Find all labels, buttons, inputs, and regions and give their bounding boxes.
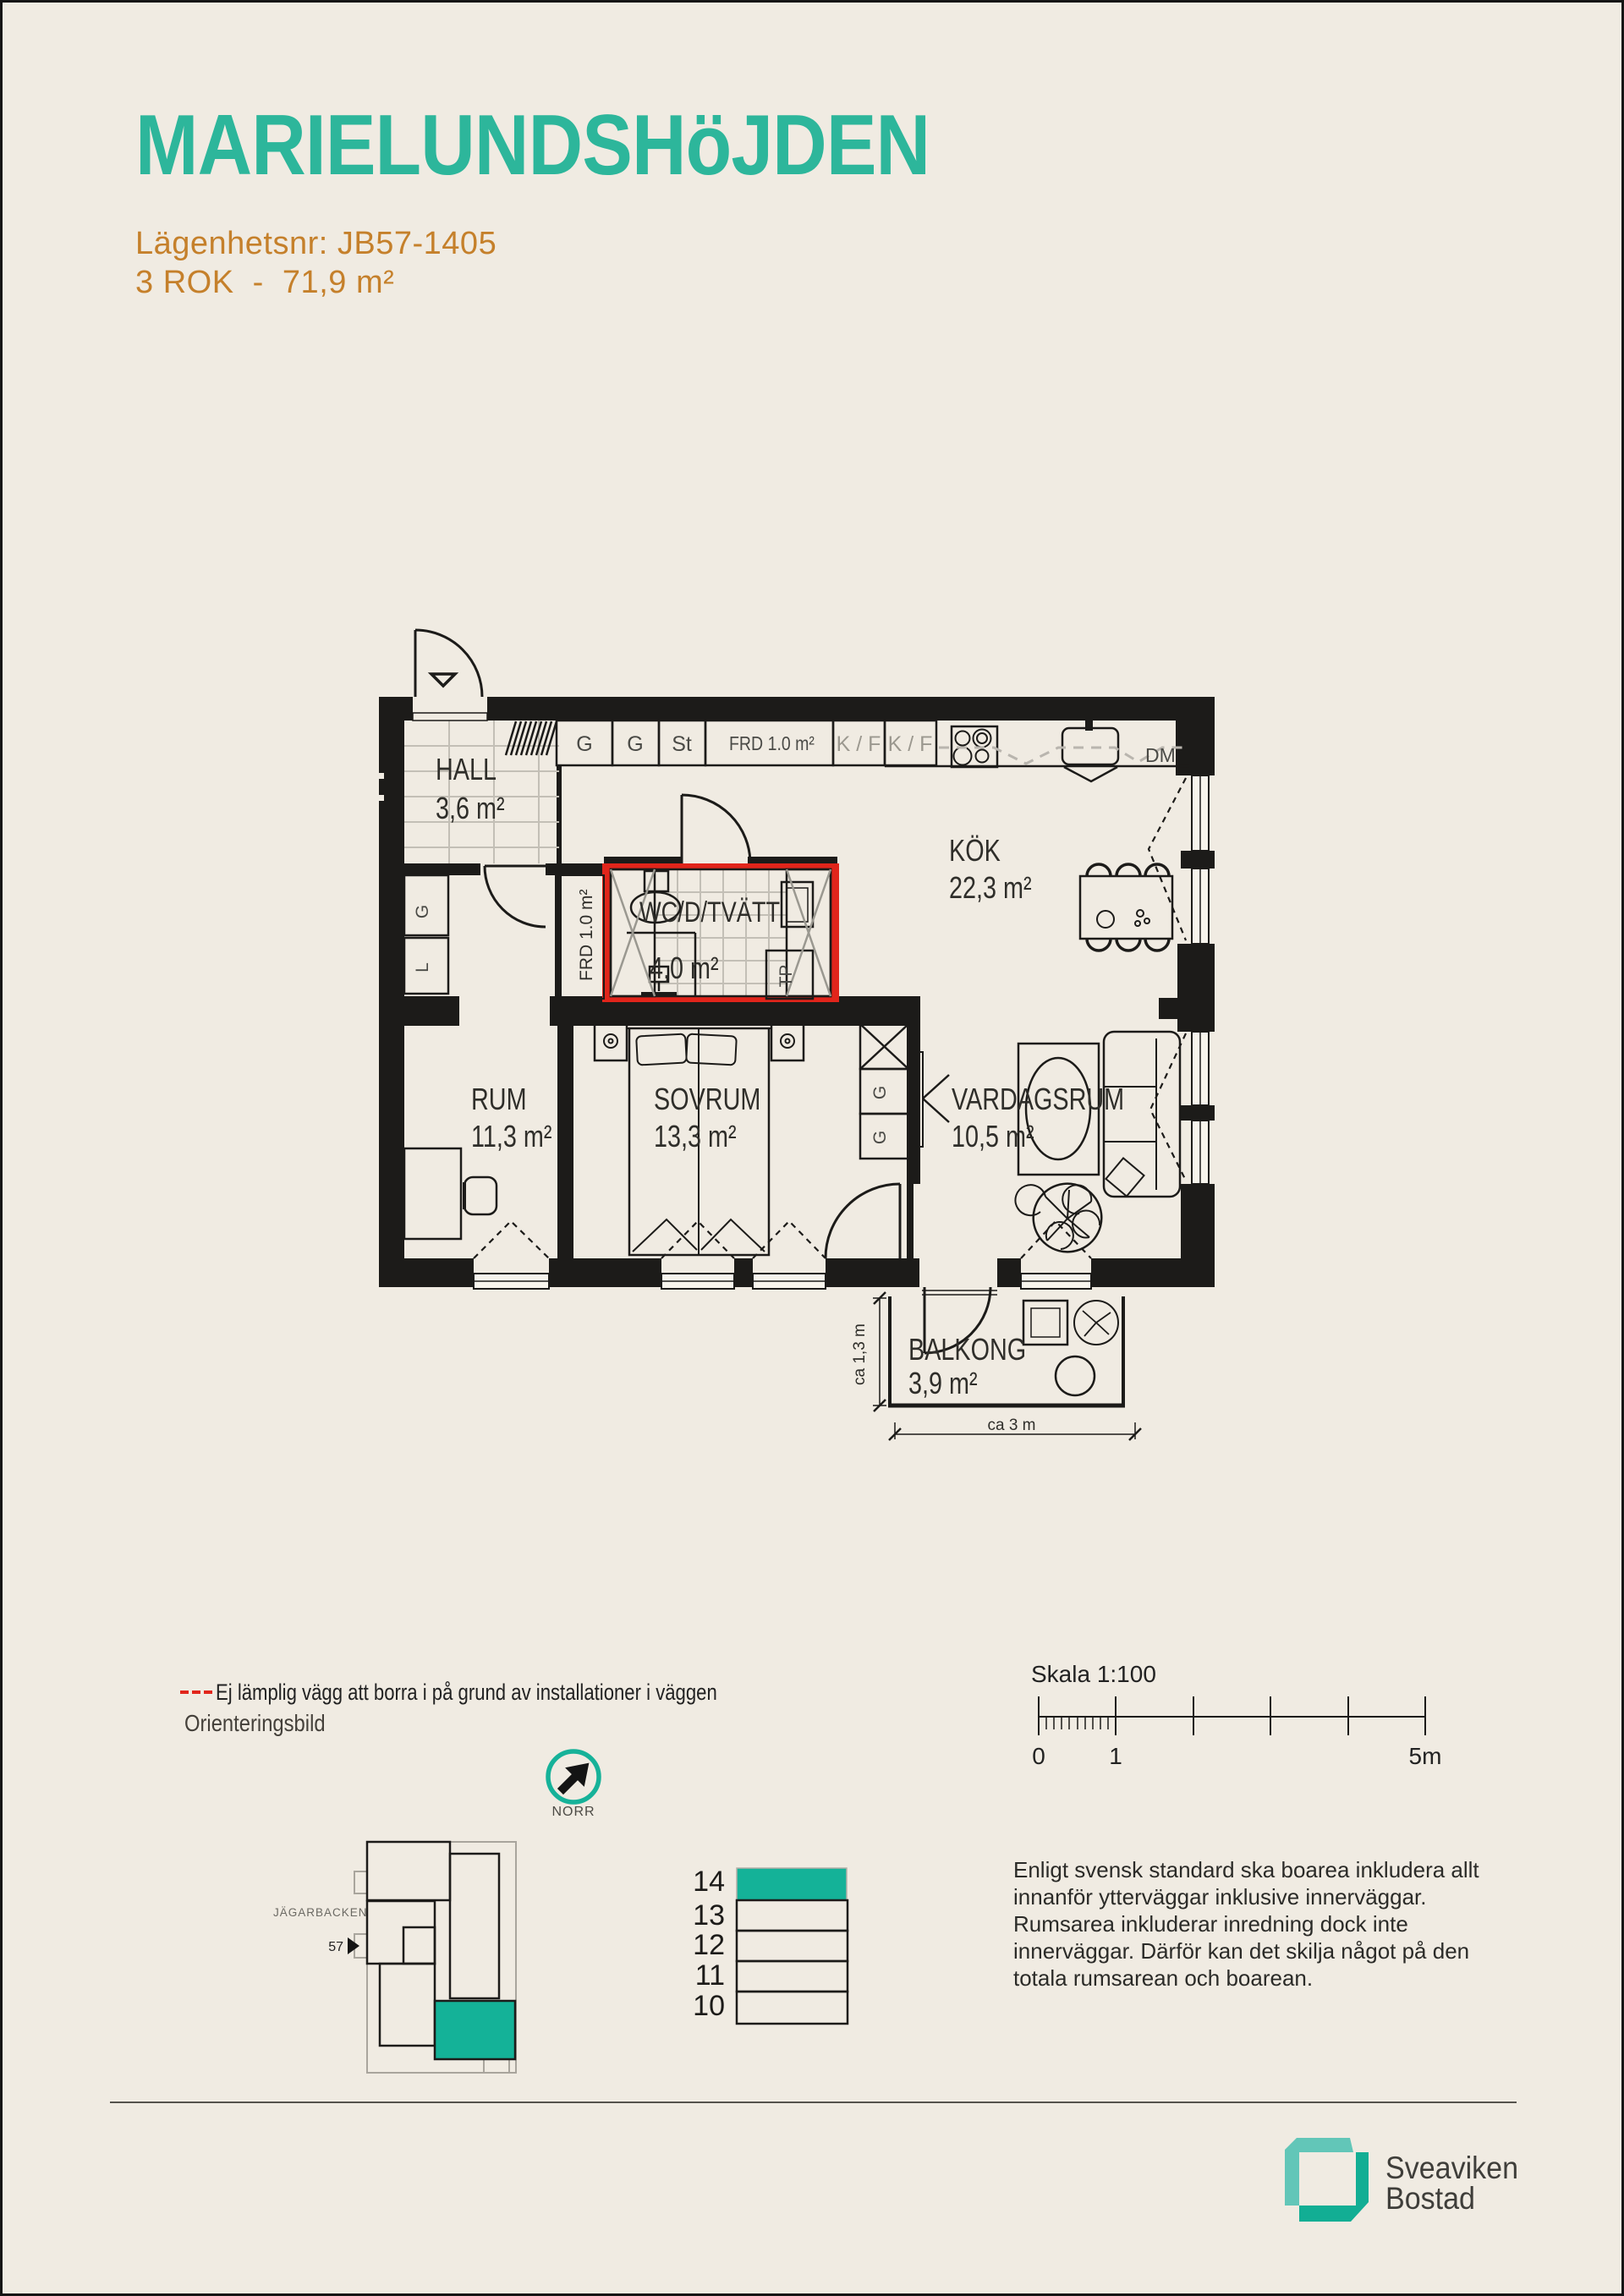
svg-text:0: 0 xyxy=(1032,1743,1045,1769)
svg-text:3,6 m²: 3,6 m² xyxy=(436,791,505,825)
svg-text:1: 1 xyxy=(1109,1743,1122,1769)
svg-text:NORR: NORR xyxy=(551,1805,595,1819)
svg-text:totala rumsarean och boarean.: totala rumsarean och boarean. xyxy=(1013,1965,1313,1991)
svg-text:13: 13 xyxy=(693,1899,725,1932)
svg-text:K / F: K / F xyxy=(837,732,881,756)
svg-text:FRD 1.0 m²: FRD 1.0 m² xyxy=(577,889,596,981)
svg-text:VARDAGSRUM: VARDAGSRUM xyxy=(952,1082,1124,1116)
svg-text:G: G xyxy=(576,732,592,756)
svg-text:Orienteringsbild: Orienteringsbild xyxy=(184,1709,326,1736)
svg-text:KÖK: KÖK xyxy=(949,833,1001,868)
svg-text:MARIELUNDSHöJDEN: MARIELUNDSHöJDEN xyxy=(135,98,930,193)
svg-text:13,3 m²: 13,3 m² xyxy=(654,1119,737,1153)
svg-text:G: G xyxy=(870,1086,890,1099)
svg-text:SOVRUM: SOVRUM xyxy=(654,1082,760,1116)
svg-text:ca 3 m: ca 3 m xyxy=(987,1417,1035,1434)
svg-text:FRD 1.0 m²: FRD 1.0 m² xyxy=(729,733,815,755)
svg-text:JÄGARBACKEN: JÄGARBACKEN xyxy=(273,1906,368,1919)
svg-text:10: 10 xyxy=(693,1990,725,2022)
svg-text:G: G xyxy=(870,1131,890,1144)
svg-text:22,3 m²: 22,3 m² xyxy=(949,870,1032,905)
svg-text:10,5 m²: 10,5 m² xyxy=(952,1119,1034,1153)
svg-text:K / F: K / F xyxy=(888,732,933,756)
svg-text:WC/D/TVÄTT: WC/D/TVÄTT xyxy=(639,896,780,929)
svg-text:Skala 1:100: Skala 1:100 xyxy=(1031,1661,1156,1687)
svg-text:innerväggar. Därför kan det sk: innerväggar. Därför kan det skilja något… xyxy=(1013,1938,1469,1964)
svg-text:3 ROK - 71,9 m²: 3 ROK - 71,9 m² xyxy=(135,265,394,300)
svg-text:TP: TP xyxy=(776,965,796,988)
svg-text:St: St xyxy=(672,732,692,756)
svg-text:DM: DM xyxy=(1145,744,1176,766)
svg-text:ca 1,3 m: ca 1,3 m xyxy=(851,1323,869,1385)
svg-text:RUM: RUM xyxy=(471,1082,527,1116)
svg-text:Lägenhetsnr: JB57-1405: Lägenhetsnr: JB57-1405 xyxy=(135,226,497,261)
svg-text:G: G xyxy=(627,732,643,756)
svg-text:12: 12 xyxy=(693,1929,725,1961)
svg-text:G: G xyxy=(413,905,432,918)
svg-text:11,3 m²: 11,3 m² xyxy=(471,1119,552,1153)
svg-text:L: L xyxy=(413,962,432,973)
svg-text:Bostad: Bostad xyxy=(1385,2181,1475,2217)
svg-text:innanför ytterväggar inklusive: innanför ytterväggar inklusive innervägg… xyxy=(1013,1884,1427,1910)
svg-text:3,9 m²: 3,9 m² xyxy=(908,1366,978,1400)
svg-text:4,0 m²: 4,0 m² xyxy=(650,951,719,985)
svg-text:5m: 5m xyxy=(1409,1743,1442,1769)
svg-text:57: 57 xyxy=(328,1940,343,1954)
svg-text:14: 14 xyxy=(693,1866,725,1898)
svg-text:Ej lämplig vägg att borra i på: Ej lämplig vägg att borra i på grund av … xyxy=(216,1680,717,1706)
svg-text:Enligt svensk standard ska boa: Enligt svensk standard ska boarea inklud… xyxy=(1013,1857,1479,1882)
svg-text:11: 11 xyxy=(695,1959,725,1992)
svg-text:Rumsarea inkluderar inredning: Rumsarea inkluderar inredning dock inte xyxy=(1013,1911,1408,1937)
svg-text:BALKONG: BALKONG xyxy=(908,1332,1026,1367)
svg-text:HALL: HALL xyxy=(436,752,497,786)
